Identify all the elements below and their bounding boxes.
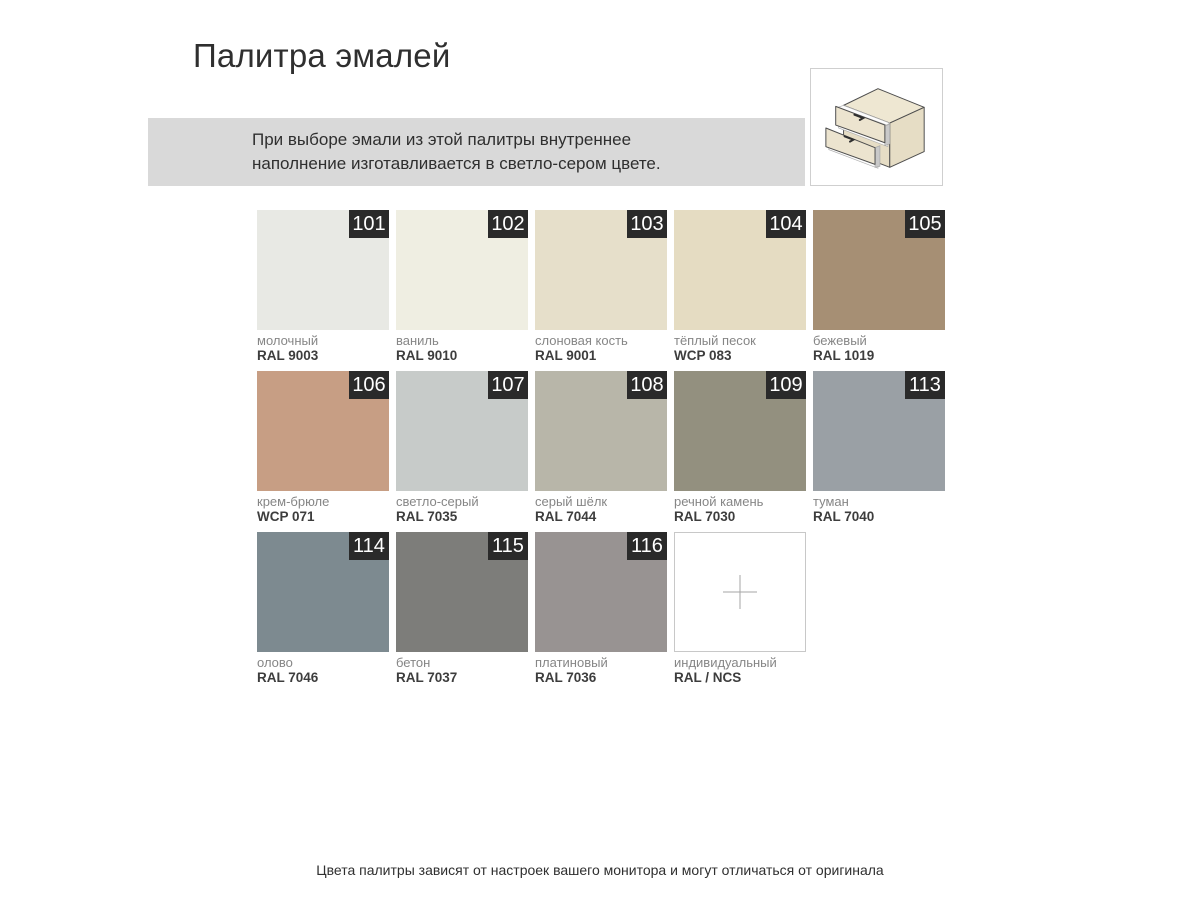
- color-swatch[interactable]: 105: [813, 210, 945, 330]
- swatch-name-label: молочный: [257, 333, 389, 348]
- swatch-number-badge: 114: [349, 532, 389, 560]
- swatch-name-label: индивидуальный: [674, 655, 806, 670]
- swatch-name-label: речной камень: [674, 494, 806, 509]
- swatch-number-badge: 103: [627, 210, 667, 238]
- swatch-name-label: олово: [257, 655, 389, 670]
- swatch-number-badge: 109: [766, 371, 806, 399]
- color-swatch[interactable]: 104: [674, 210, 806, 330]
- swatch-number-badge: 108: [627, 371, 667, 399]
- swatch-name-label: бетон: [396, 655, 528, 670]
- swatch-number-badge: 115: [488, 532, 528, 560]
- color-swatch[interactable]: 109: [674, 371, 806, 491]
- page-title: Палитра эмалей: [193, 37, 450, 75]
- swatch-code-label: RAL 1019: [813, 348, 945, 364]
- color-swatch[interactable]: 107: [396, 371, 528, 491]
- swatch-code-label: RAL 7044: [535, 509, 667, 525]
- swatch-number-badge: 107: [488, 371, 528, 399]
- plus-icon: [722, 574, 758, 610]
- swatch-name-label: бежевый: [813, 333, 945, 348]
- swatch-code-label: RAL 9003: [257, 348, 389, 364]
- swatch-name-label: туман: [813, 494, 945, 509]
- swatch-number-badge: 106: [349, 371, 389, 399]
- swatch-code-label: RAL 7036: [535, 670, 667, 686]
- swatch-cell-114: 114 олово RAL 7046: [257, 532, 389, 686]
- info-banner: При выборе эмали из этой палитры внутрен…: [148, 118, 805, 186]
- swatch-cell-116: 116 платиновый RAL 7036: [535, 532, 667, 686]
- swatch-code-label: WCP 071: [257, 509, 389, 525]
- swatch-number-badge: 113: [905, 371, 945, 399]
- color-swatch[interactable]: 114: [257, 532, 389, 652]
- swatch-cell-115: 115 бетон RAL 7037: [396, 532, 528, 686]
- swatch-cell-104: 104 тёплый песок WCP 083: [674, 210, 806, 364]
- drawer-unit-icon: [811, 69, 942, 185]
- color-swatch[interactable]: 102: [396, 210, 528, 330]
- swatch-name-label: серый шёлк: [535, 494, 667, 509]
- swatch-name-label: слоновая кость: [535, 333, 667, 348]
- color-swatch[interactable]: 106: [257, 371, 389, 491]
- swatch-code-label: RAL 7046: [257, 670, 389, 686]
- swatch-name-label: ваниль: [396, 333, 528, 348]
- swatch-number-badge: 105: [905, 210, 945, 238]
- color-swatch[interactable]: 113: [813, 371, 945, 491]
- swatch-number-badge: 101: [349, 210, 389, 238]
- swatch-code-label: RAL 7035: [396, 509, 528, 525]
- swatch-cell-107: 107 светло-серый RAL 7035: [396, 371, 528, 525]
- swatch-code-label: RAL 9010: [396, 348, 528, 364]
- enamel-palette-page: Палитра эмалей При выборе эмали из этой …: [0, 0, 1200, 900]
- swatch-cell-105: 105 бежевый RAL 1019: [813, 210, 945, 364]
- color-swatch[interactable]: 101: [257, 210, 389, 330]
- drawer-unit-image-box: [810, 68, 943, 186]
- swatch-number-badge: 104: [766, 210, 806, 238]
- swatch-cell-106: 106 крем-брюле WCP 071: [257, 371, 389, 525]
- color-swatch[interactable]: 116: [535, 532, 667, 652]
- color-swatch[interactable]: 115: [396, 532, 528, 652]
- swatch-name-label: тёплый песок: [674, 333, 806, 348]
- swatch-name-label: светло-серый: [396, 494, 528, 509]
- palette-grid: 101 молочный RAL 9003 102 ваниль RAL 901…: [257, 210, 945, 686]
- swatch-number-badge: 116: [627, 532, 667, 560]
- swatch-code-label: WCP 083: [674, 348, 806, 364]
- swatch-code-label: RAL 7040: [813, 509, 945, 525]
- swatch-cell-101: 101 молочный RAL 9003: [257, 210, 389, 364]
- color-swatch[interactable]: 108: [535, 371, 667, 491]
- swatch-number-badge: 102: [488, 210, 528, 238]
- swatch-cell-102: 102 ваниль RAL 9010: [396, 210, 528, 364]
- color-swatch[interactable]: 103: [535, 210, 667, 330]
- swatch-cell-custom: индивидуальный RAL / NCS: [674, 532, 806, 686]
- swatch-cell-113: 113 туман RAL 7040: [813, 371, 945, 525]
- swatch-cell-108: 108 серый шёлк RAL 7044: [535, 371, 667, 525]
- swatch-code-label: RAL 9001: [535, 348, 667, 364]
- swatch-name-label: крем-брюле: [257, 494, 389, 509]
- swatch-name-label: платиновый: [535, 655, 667, 670]
- swatch-cell-103: 103 слоновая кость RAL 9001: [535, 210, 667, 364]
- swatch-code-label: RAL / NCS: [674, 670, 806, 686]
- footer-disclaimer: Цвета палитры зависят от настроек вашего…: [0, 862, 1200, 878]
- custom-color-swatch[interactable]: [674, 532, 806, 652]
- swatch-code-label: RAL 7030: [674, 509, 806, 525]
- swatch-cell-109: 109 речной камень RAL 7030: [674, 371, 806, 525]
- info-banner-line2: наполнение изготавливается в светло-серо…: [252, 152, 805, 176]
- swatch-code-label: RAL 7037: [396, 670, 528, 686]
- info-banner-line1: При выборе эмали из этой палитры внутрен…: [252, 128, 805, 152]
